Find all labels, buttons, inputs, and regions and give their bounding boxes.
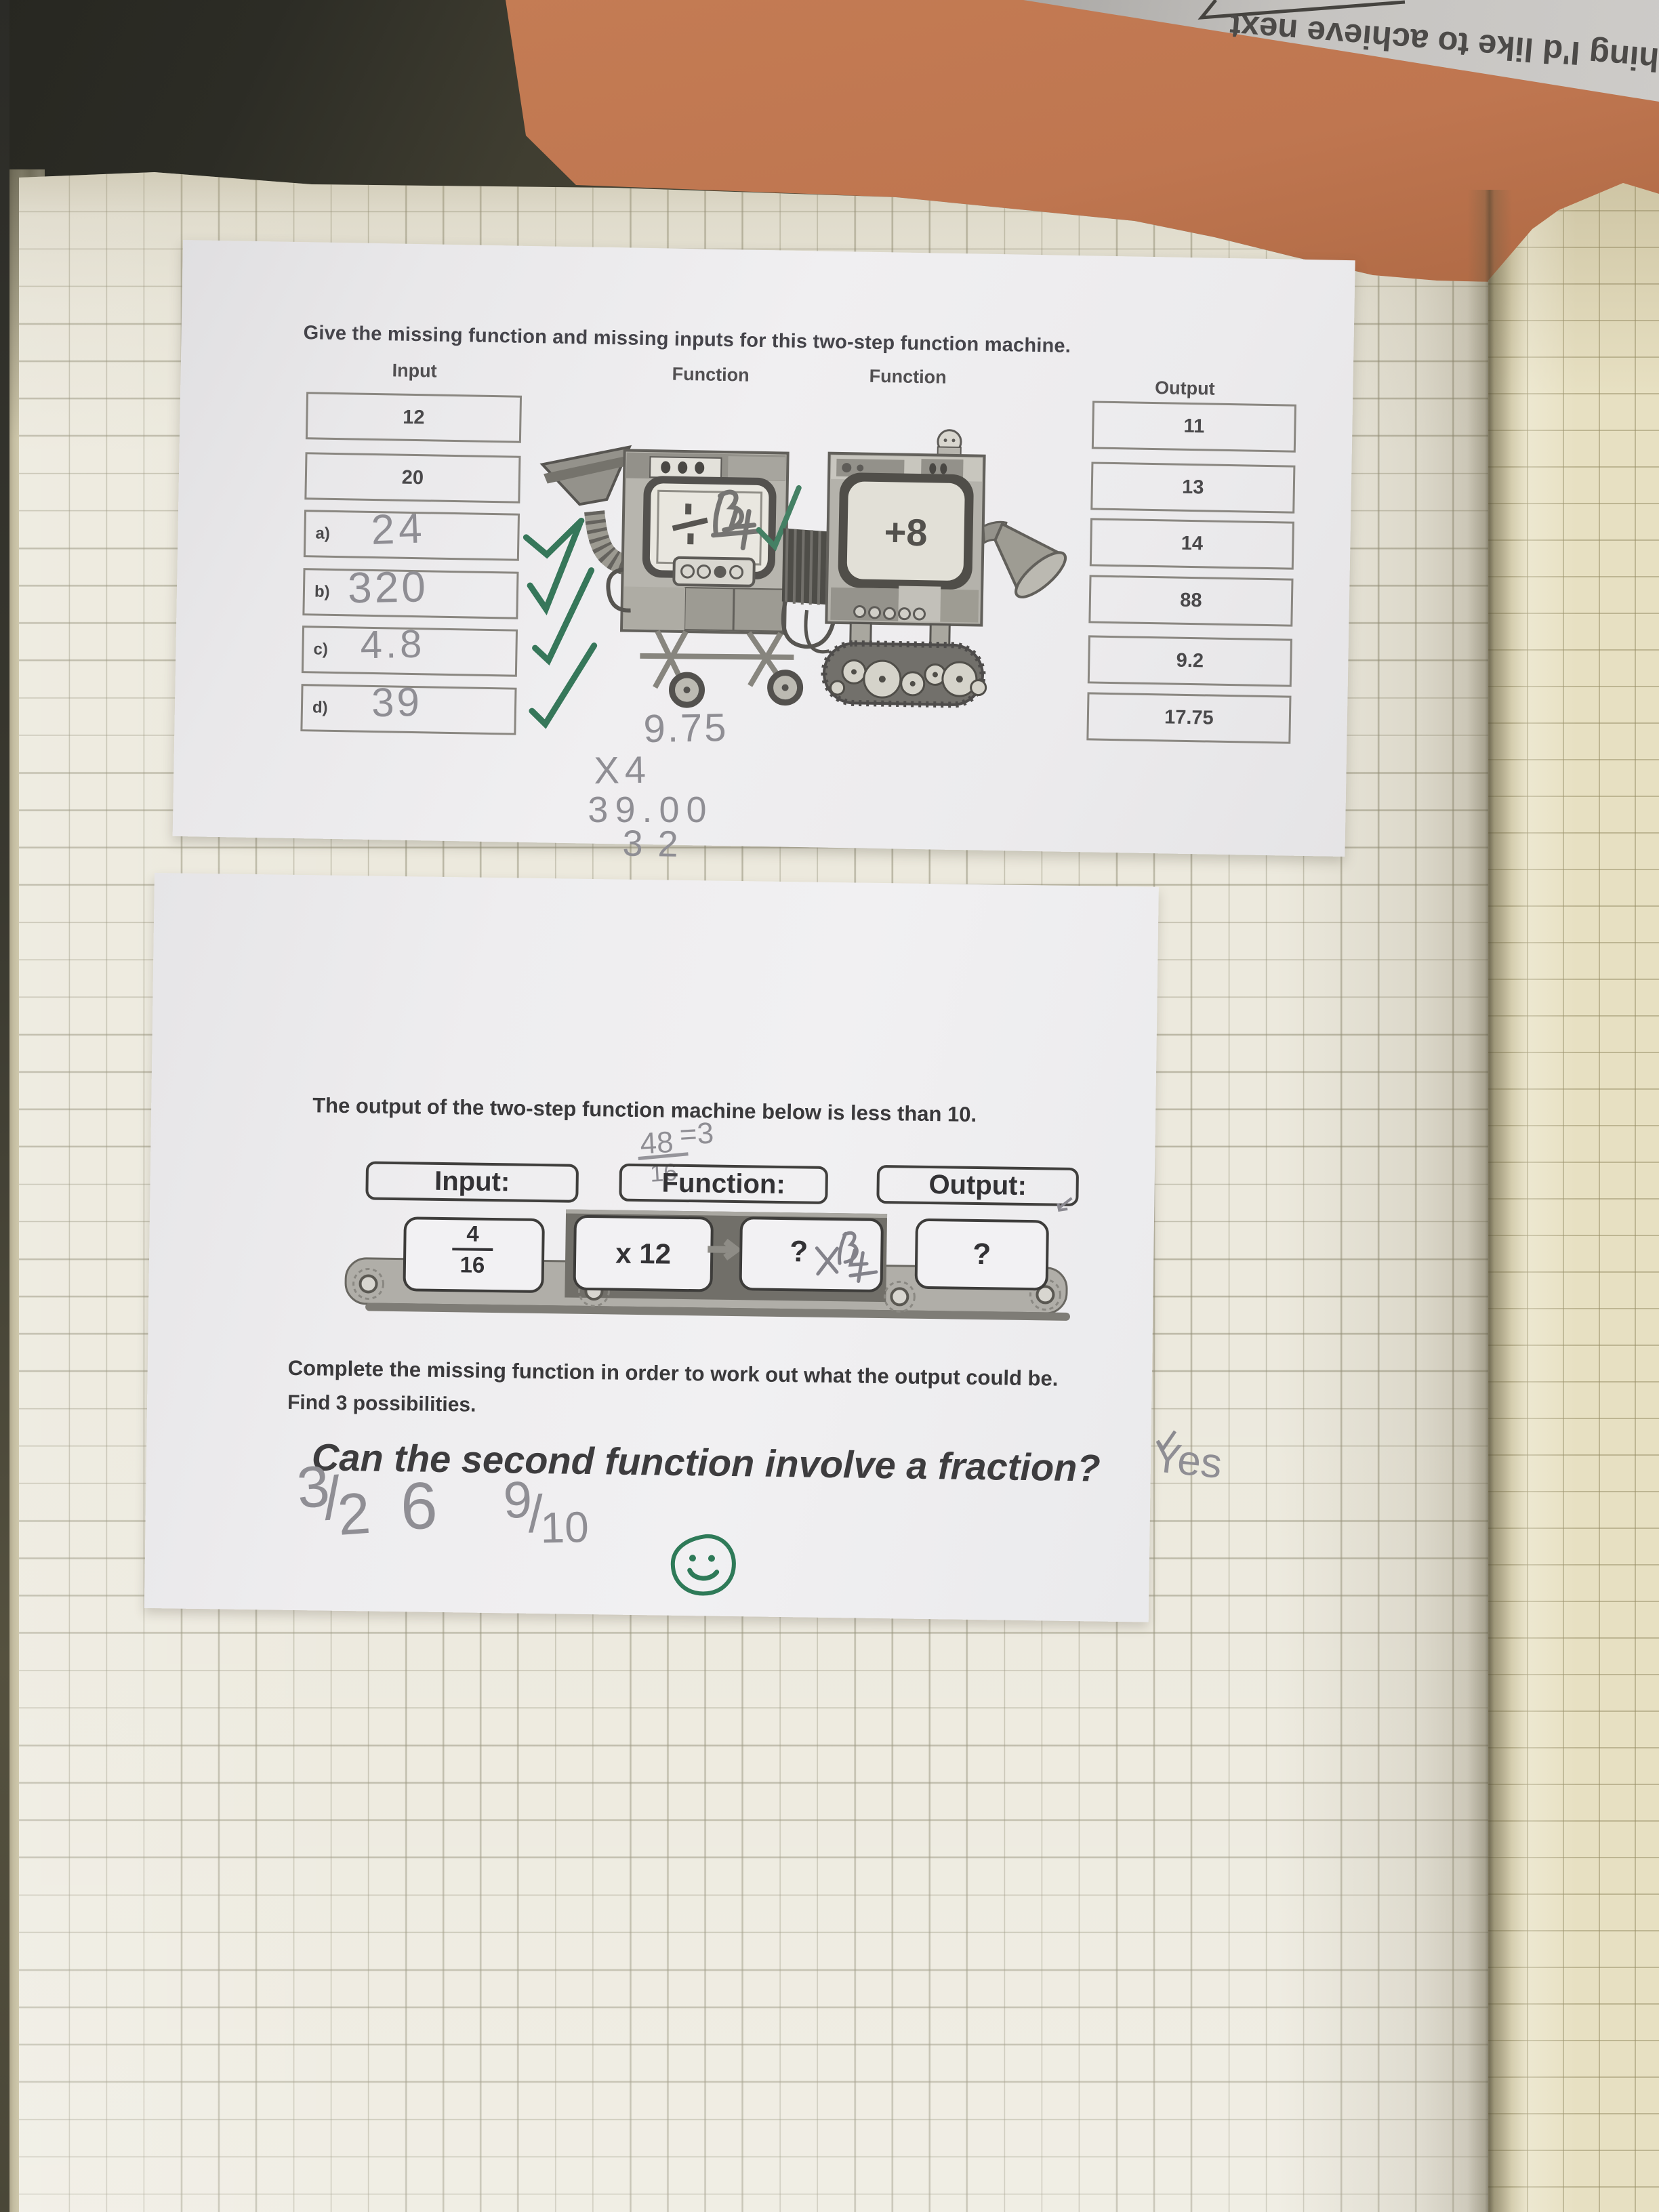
svg-text:+8: +8 — [884, 510, 928, 554]
